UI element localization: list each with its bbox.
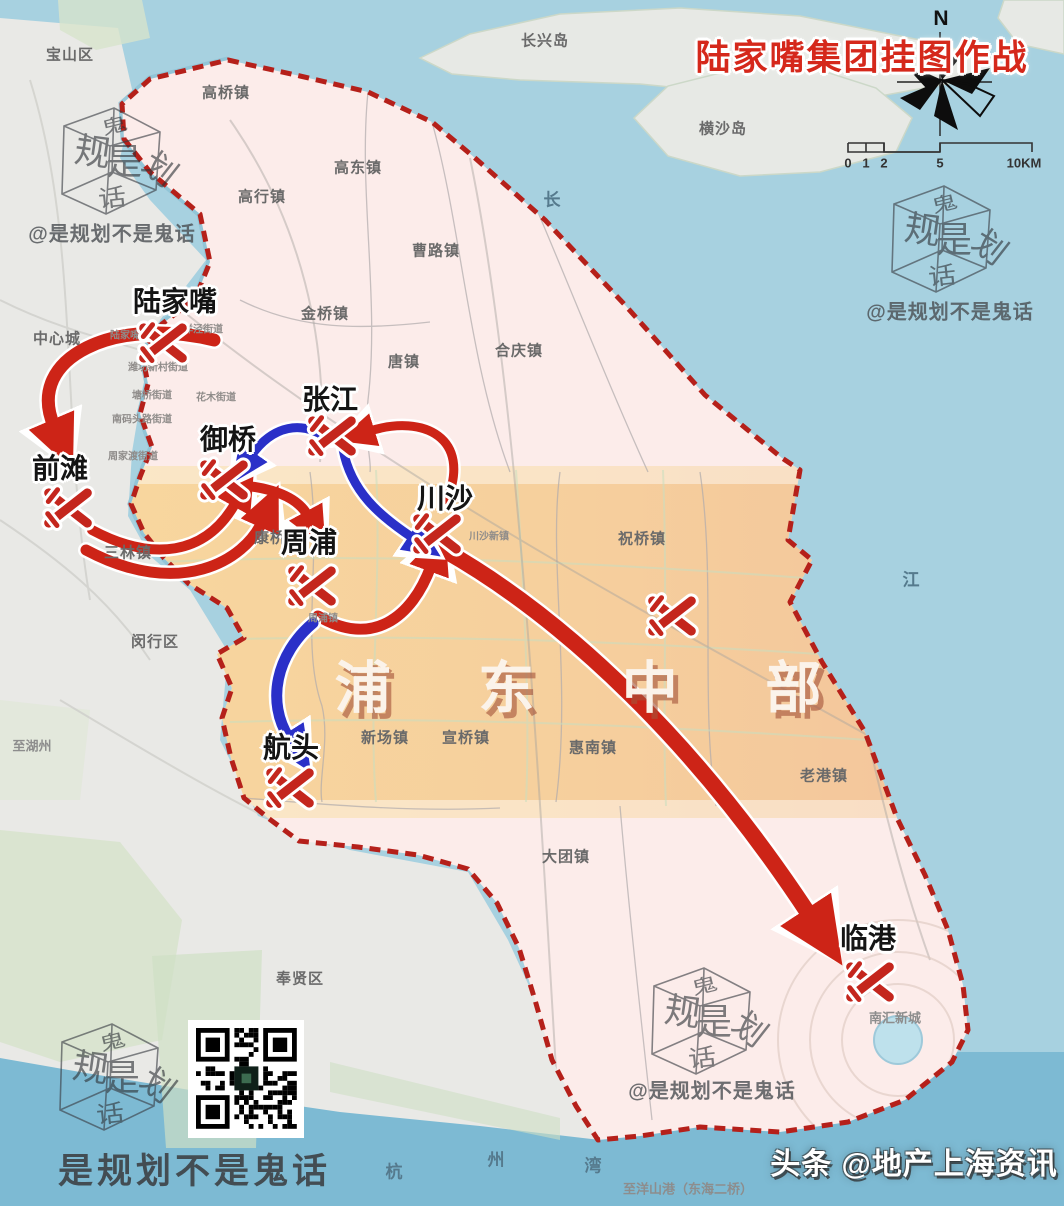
svg-text:是: 是 bbox=[936, 220, 972, 260]
svg-text:是: 是 bbox=[106, 142, 142, 182]
scale-tick-label: 1 bbox=[862, 156, 869, 171]
map-label: 三林镇 bbox=[104, 542, 152, 563]
street-label: 周家渡街道 bbox=[108, 448, 158, 463]
map-label: 中心城 bbox=[33, 328, 81, 349]
battle-marker-label: 张江 bbox=[302, 378, 358, 418]
scale-tick-label: 5 bbox=[936, 156, 943, 171]
battle-marker-label: 御桥 bbox=[200, 418, 256, 458]
battle-marker-label: 陆家嘴 bbox=[133, 280, 217, 320]
map-label: 湾 bbox=[585, 1152, 604, 1177]
map-label: 大团镇 bbox=[542, 846, 590, 867]
map-label: 高桥镇 bbox=[202, 82, 250, 103]
battle-marker bbox=[138, 318, 188, 368]
battle-marker bbox=[307, 411, 357, 461]
map-canvas: 鬼规是划话鬼规是划话鬼规是划话鬼规是划话 宝山区长兴岛横沙岛高桥镇高东镇高行镇曹… bbox=[0, 0, 1064, 1206]
map-label: 曹路镇 bbox=[412, 240, 460, 261]
watermark-handle: @是规划不是鬼话 bbox=[28, 218, 196, 247]
svg-text:话: 话 bbox=[97, 184, 128, 213]
battle-marker bbox=[43, 483, 93, 533]
map-label: 奉贤区 bbox=[276, 968, 324, 989]
battle-marker-label: 川沙 bbox=[417, 477, 473, 517]
map-label: 老港镇 bbox=[800, 765, 848, 786]
map-label: 宣桥镇 bbox=[442, 727, 490, 748]
map-label: 唐镇 bbox=[388, 351, 420, 372]
svg-text:是: 是 bbox=[696, 1002, 732, 1042]
map-label: 南汇新城 bbox=[869, 1008, 921, 1027]
map-label: 宝山区 bbox=[46, 44, 94, 65]
street-label: 洋泾街道 bbox=[183, 321, 223, 336]
map-label: 惠南镇 bbox=[569, 737, 617, 758]
page-title: 陆家嘴集团挂图作战 bbox=[695, 30, 1028, 81]
map-label: 杭 bbox=[386, 1158, 405, 1183]
map-label: 金桥镇 bbox=[301, 303, 349, 324]
map-label: 至湖州 bbox=[12, 736, 51, 755]
street-label: 川沙新镇 bbox=[469, 528, 509, 543]
battle-marker bbox=[287, 561, 337, 611]
map-label: 祝桥镇 bbox=[618, 528, 666, 549]
battle-marker-label: 临港 bbox=[840, 917, 896, 957]
svg-text:是: 是 bbox=[104, 1058, 140, 1098]
qr-code bbox=[188, 1020, 304, 1138]
street-label: 周浦镇 bbox=[308, 610, 338, 625]
map-label: 高东镇 bbox=[334, 157, 382, 178]
battle-marker bbox=[845, 957, 895, 1007]
scale-tick-label: 10KM bbox=[1007, 156, 1042, 171]
battle-marker bbox=[199, 455, 249, 505]
north-label: N bbox=[933, 7, 948, 31]
region-highlight-label: 浦 东 中 部 bbox=[335, 644, 858, 725]
map-label: 新场镇 bbox=[361, 727, 409, 748]
map-label: 江 bbox=[903, 566, 922, 591]
map-label: 州 bbox=[488, 1146, 507, 1171]
battle-marker-label: 前滩 bbox=[32, 447, 88, 487]
map-label: 高行镇 bbox=[238, 186, 286, 207]
map-label: 长兴岛 bbox=[521, 30, 569, 51]
watermark-handle: @是规划不是鬼话 bbox=[628, 1075, 796, 1104]
scale-tick-label: 2 bbox=[880, 156, 887, 171]
map-label: 至洋山港（东海二桥） bbox=[623, 1179, 753, 1198]
battle-marker bbox=[647, 591, 697, 641]
byline-credit: 头条 @地产上海资讯 bbox=[770, 1139, 1058, 1183]
map-label: 横沙岛 bbox=[699, 118, 747, 139]
map-label: 合庆镇 bbox=[495, 340, 543, 361]
svg-text:话: 话 bbox=[927, 262, 958, 291]
svg-text:话: 话 bbox=[95, 1100, 126, 1129]
street-label: 塘桥街道 bbox=[132, 387, 172, 402]
battle-marker bbox=[265, 763, 315, 813]
svg-text:话: 话 bbox=[687, 1044, 718, 1073]
battle-marker-label: 周浦 bbox=[281, 521, 337, 561]
brand-watermark-text: 是规划不是鬼话 bbox=[58, 1143, 331, 1194]
map-label: 闵行区 bbox=[131, 631, 179, 652]
watermark-handle: @是规划不是鬼话 bbox=[866, 296, 1034, 325]
battle-marker-label: 航头 bbox=[263, 726, 319, 766]
map-label: 长 bbox=[544, 186, 563, 211]
street-label: 南码头路街道 bbox=[112, 411, 172, 426]
street-label: 花木街道 bbox=[196, 389, 236, 404]
scale-tick-label: 0 bbox=[844, 156, 851, 171]
